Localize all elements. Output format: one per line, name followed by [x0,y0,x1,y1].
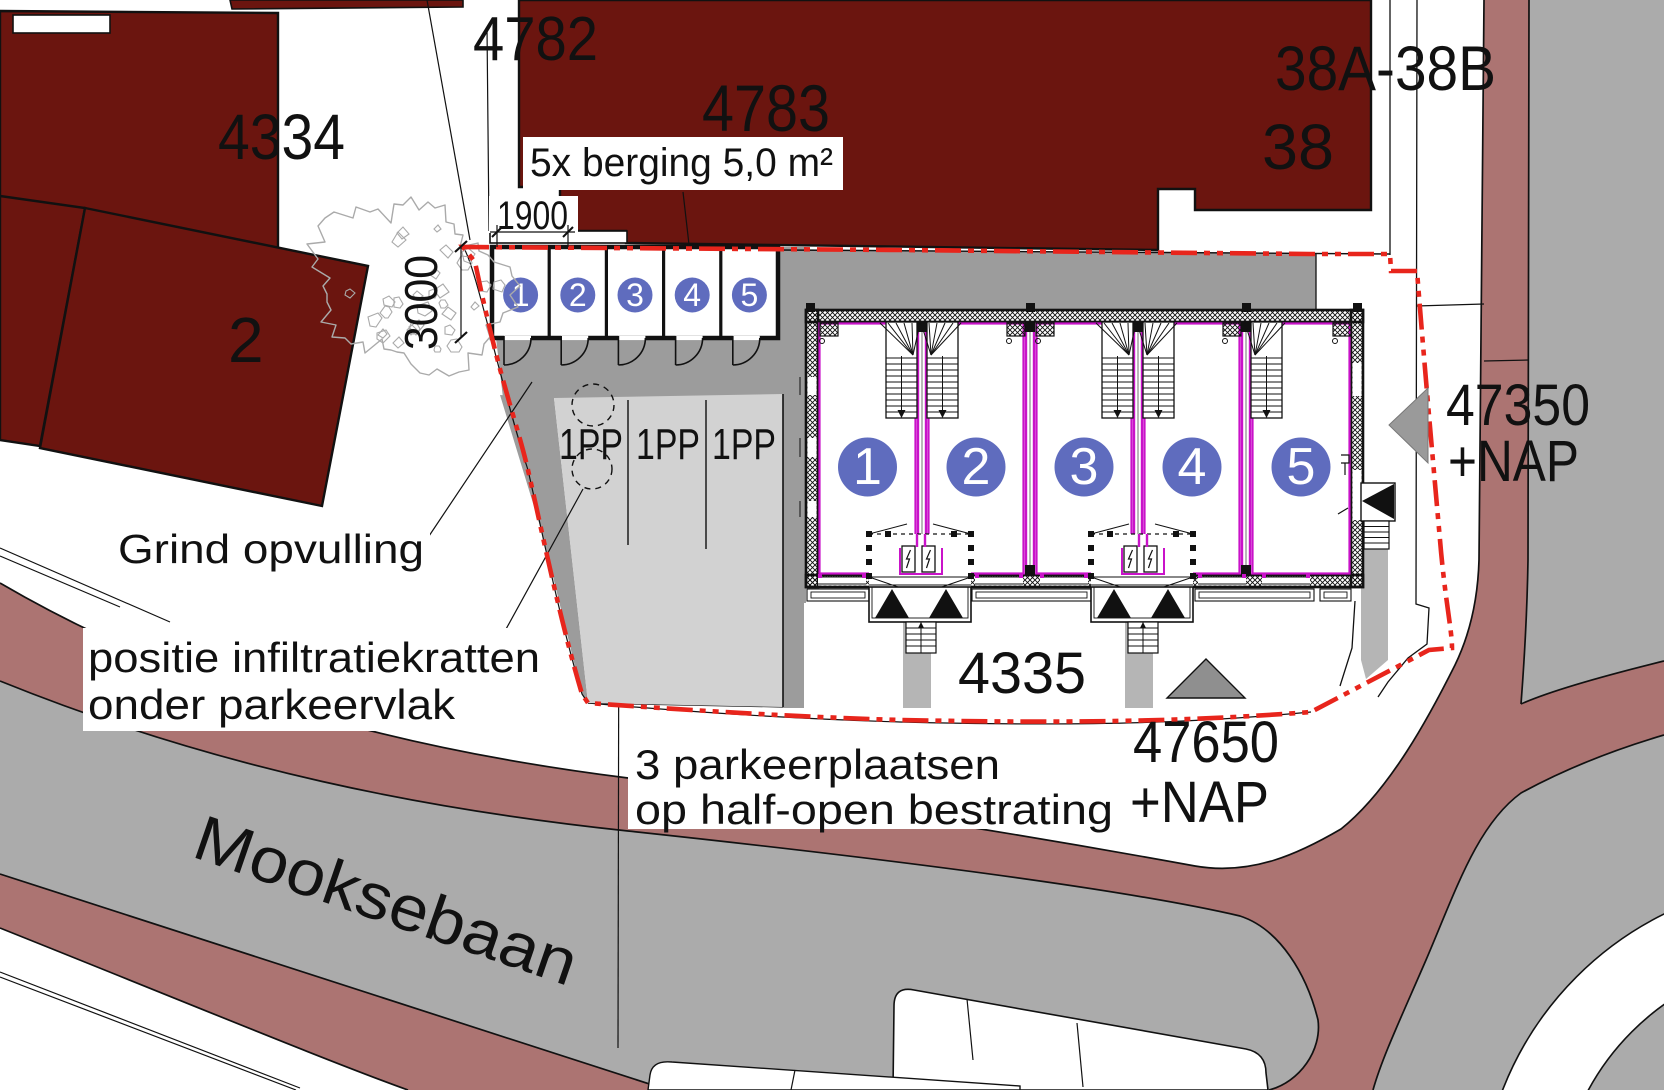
svg-text:op half-open bestrating: op half-open bestrating [635,786,1113,833]
svg-text:38: 38 [1262,111,1334,183]
svg-text:4: 4 [1178,438,1207,496]
svg-text:4782: 4782 [473,5,598,74]
svg-text:2: 2 [569,277,587,313]
svg-text:4335: 4335 [958,641,1086,706]
svg-text:3000: 3000 [395,255,447,350]
svg-text:3 parkeerplaatsen: 3 parkeerplaatsen [635,741,1000,788]
svg-text:1PP: 1PP [712,420,776,469]
svg-text:4: 4 [683,277,701,313]
svg-text:+NAP: +NAP [1130,770,1269,835]
svg-text:onder parkeervlak: onder parkeervlak [88,681,456,728]
svg-text:38A-38B: 38A-38B [1275,34,1496,104]
svg-text:5x berging 5,0 m²: 5x berging 5,0 m² [530,141,833,185]
svg-text:47650: 47650 [1133,710,1279,775]
svg-text:2: 2 [962,438,991,496]
svg-text:1: 1 [512,277,530,313]
svg-text:positie infiltratiekratten: positie infiltratiekratten [88,634,540,681]
svg-text:4334: 4334 [218,101,345,173]
svg-text:2: 2 [228,304,264,376]
svg-text:1PP: 1PP [636,420,700,469]
svg-text:1PP: 1PP [559,420,623,469]
svg-text:Grind opvulling: Grind opvulling [118,526,424,572]
svg-text:4783: 4783 [702,71,830,145]
svg-text:1900: 1900 [497,194,568,238]
svg-text:3: 3 [1070,438,1099,496]
svg-text:5: 5 [741,277,759,313]
svg-text:3: 3 [626,277,644,313]
svg-text:5: 5 [1287,438,1316,496]
svg-text:1: 1 [853,438,882,496]
svg-text:+NAP: +NAP [1448,429,1579,494]
